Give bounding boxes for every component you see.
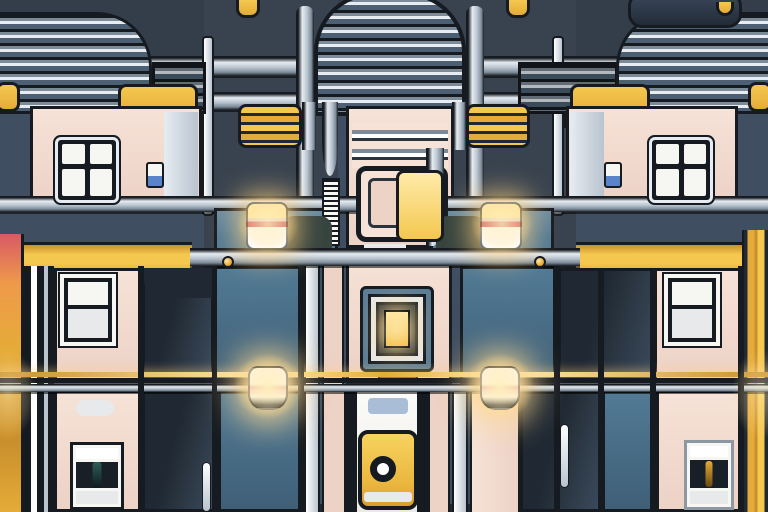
window-pane: [684, 144, 707, 164]
window-pane: [672, 282, 712, 305]
vent-cap-left: [302, 102, 316, 150]
window-pane: [68, 282, 108, 305]
door-knob-ring: [370, 456, 396, 482]
ledge-shelf: [190, 248, 580, 266]
hanging-lamp-left: [248, 366, 288, 410]
window-frame-band: [76, 448, 118, 459]
window-pane: [90, 144, 113, 164]
mid-window-left: [64, 278, 112, 342]
window-frame-band: [690, 491, 728, 504]
grid-line: [650, 268, 656, 512]
white-pilaster-mid-left: [304, 266, 320, 386]
lamp-hood-left: [282, 216, 332, 252]
pane-gold-sliver: [706, 461, 713, 487]
bottom-left-tag: [76, 400, 114, 416]
window-pane: [68, 309, 108, 338]
striped-vent-left: [238, 104, 302, 148]
cube-lamp-left: [246, 202, 288, 250]
grid-line: [138, 266, 144, 512]
window-pane: [672, 309, 712, 338]
right-gold-pipes: [742, 230, 768, 512]
gold-knob-right: [506, 0, 530, 18]
mid-window-right: [668, 278, 716, 342]
illustration-canvas: [0, 0, 768, 512]
window-pane: [90, 169, 113, 196]
window-pane: [62, 169, 85, 196]
bottom-window-right: [684, 440, 734, 510]
pink-pilaster-bottom-left: [322, 390, 346, 512]
pink-pilaster-bottom-right: [428, 390, 450, 512]
window-pane: [684, 169, 707, 196]
window-pane: [62, 144, 85, 164]
window-pane: [656, 144, 679, 164]
vent-cap-right: [452, 102, 466, 150]
gold-rivet-right: [534, 256, 546, 268]
gold-knob-left: [236, 0, 260, 18]
white-pilaster-bottom-left: [304, 390, 320, 512]
gloss-highlight-right: [560, 424, 569, 488]
right-facade-window: [652, 140, 710, 200]
yellow-corner-left: [0, 82, 20, 112]
pane-reflection: [93, 462, 102, 488]
grid-line: [598, 268, 604, 512]
window-pane: [690, 460, 728, 488]
chrome-blade-left: [322, 102, 338, 176]
door-blue-tag: [368, 398, 408, 414]
left-facade-pale-strip: [164, 112, 198, 200]
gold-rivet-left: [222, 256, 234, 268]
teal-panel-bottom-right: [602, 390, 656, 512]
sign-bottom-strip: [364, 492, 412, 502]
center-window-lit-pane: [384, 310, 410, 348]
yellow-corner-right: [748, 82, 768, 112]
hanging-lamp-right: [480, 366, 520, 410]
striped-vent-right: [466, 104, 530, 148]
window-frame-band: [690, 446, 728, 457]
right-facade-chip: [604, 162, 622, 188]
door-frame-left: [346, 390, 354, 512]
left-facade-window: [58, 140, 116, 200]
grid-line: [738, 266, 744, 512]
navy-panel-mid-right: [558, 268, 654, 382]
grid-line: [212, 266, 217, 512]
door-frame-right: [420, 390, 428, 512]
left-facade-chip: [146, 162, 164, 188]
nested-yellow-panel: [396, 170, 444, 242]
grid-line: [298, 266, 304, 512]
center-louver-tower: [314, 0, 466, 116]
white-pilaster-bottom-right: [452, 390, 468, 512]
pink-pilaster-mid-left: [322, 266, 344, 386]
gloss-highlight-left: [202, 462, 211, 512]
window-frame-band: [76, 491, 118, 504]
bottom-window-left: [70, 442, 124, 510]
window-pane: [656, 169, 679, 196]
door-knob-sign: [358, 430, 418, 510]
cube-lamp-right: [480, 202, 522, 250]
window-pane: [76, 462, 118, 488]
dark-hood-mid-left: [142, 268, 212, 298]
grid-line: [554, 266, 560, 512]
right-facade-pale-strip: [570, 112, 604, 200]
